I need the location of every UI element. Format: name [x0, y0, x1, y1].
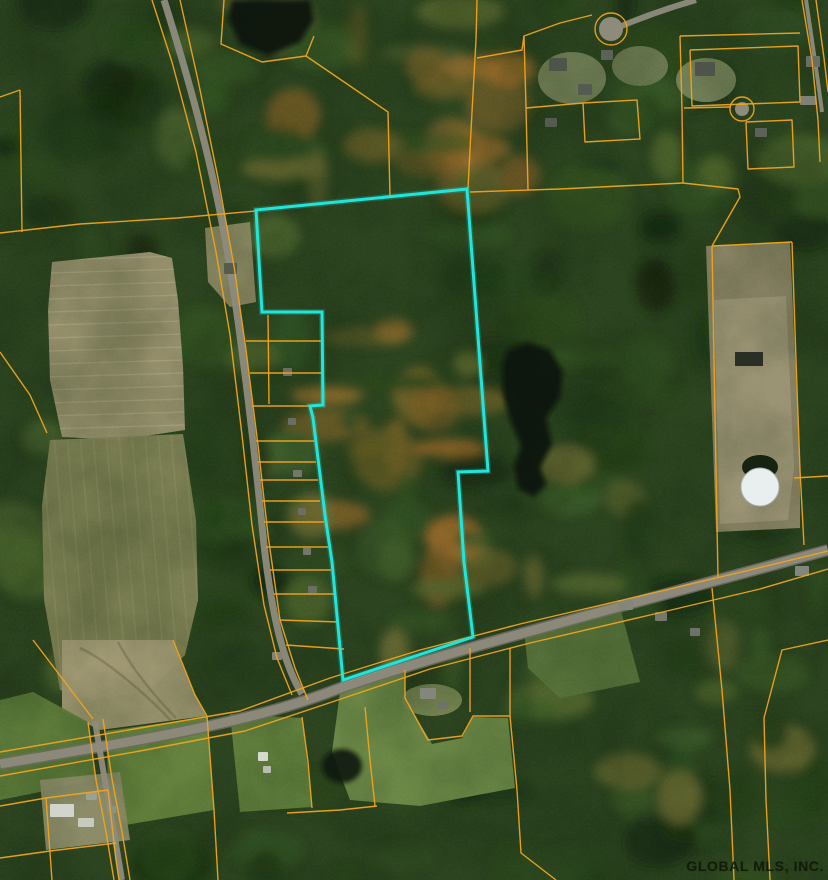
building: [258, 752, 268, 761]
building: [288, 418, 296, 425]
water-tank: [741, 468, 779, 506]
building: [618, 600, 633, 610]
building: [78, 818, 94, 827]
building: [303, 548, 311, 555]
building: [107, 806, 116, 813]
building: [298, 508, 306, 515]
building: [263, 766, 271, 773]
building: [601, 50, 613, 60]
building: [695, 62, 715, 76]
parcel-line: [684, 107, 730, 108]
pond: [322, 749, 362, 783]
building: [438, 701, 448, 709]
building: [545, 118, 557, 127]
building: [50, 804, 74, 817]
parcel-line: [268, 315, 269, 404]
building: [549, 58, 567, 71]
building: [293, 470, 302, 477]
building: [308, 586, 317, 593]
building: [690, 628, 700, 636]
building: [755, 128, 767, 137]
aerial-map-svg: [0, 0, 828, 880]
tank-building: [735, 352, 763, 366]
building: [578, 84, 592, 95]
building: [420, 688, 436, 699]
building: [283, 368, 292, 376]
map-canvas[interactable]: GLOBAL MLS, INC.: [0, 0, 828, 880]
building: [800, 96, 816, 105]
watermark-text: GLOBAL MLS, INC.: [686, 858, 824, 874]
cul-de-sac-bulb: [599, 17, 623, 41]
